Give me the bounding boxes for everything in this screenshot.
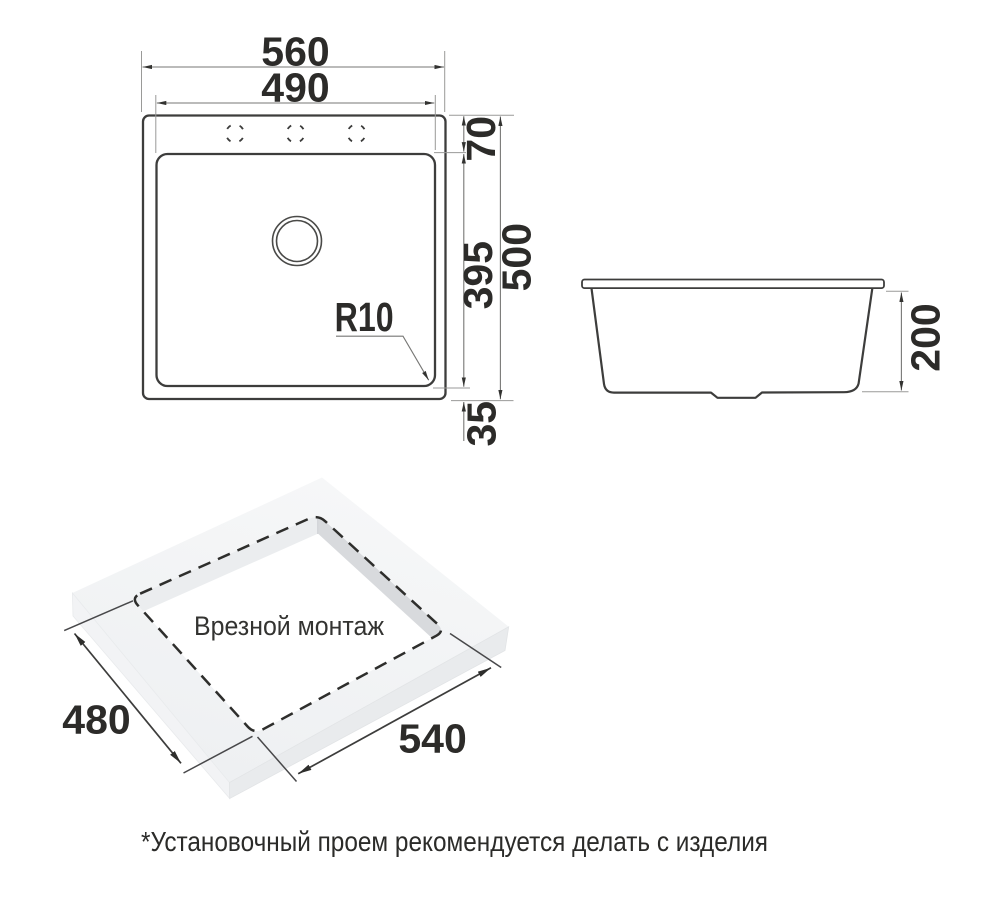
svg-text:70: 70 xyxy=(458,116,504,162)
svg-text:490: 490 xyxy=(261,65,329,111)
svg-text:*Установочный проем рекомендуе: *Установочный проем рекомендуется делать… xyxy=(141,826,768,857)
svg-text:540: 540 xyxy=(398,716,466,762)
svg-text:500: 500 xyxy=(494,223,540,291)
svg-text:R10: R10 xyxy=(335,294,394,340)
svg-text:35: 35 xyxy=(459,401,505,447)
svg-text:480: 480 xyxy=(62,697,130,743)
svg-text:200: 200 xyxy=(903,303,949,371)
svg-text:Врезной монтаж: Врезной монтаж xyxy=(194,611,384,641)
